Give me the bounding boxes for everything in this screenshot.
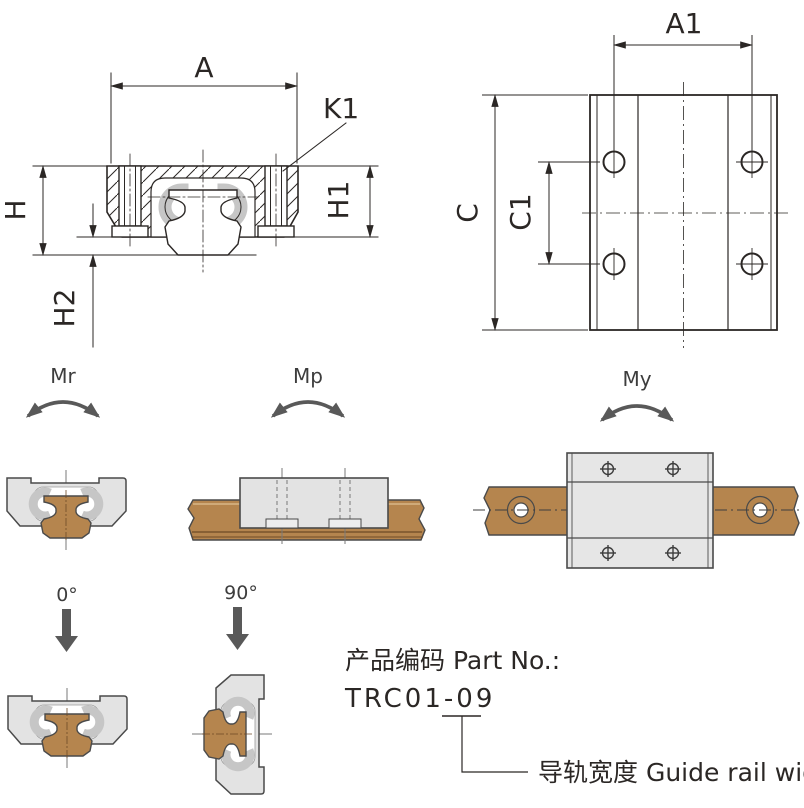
down-arrow-icon — [226, 607, 249, 650]
dim-label-h: H — [0, 199, 32, 220]
moment-arrow-icon — [273, 402, 343, 416]
dim-label-a1: A1 — [666, 7, 703, 40]
callout-leader-line — [462, 716, 528, 772]
part-no-label: 产品编码 Part No.: — [345, 646, 560, 675]
part-number-callout: 产品编码 Part No.: TRC01-09 导轨宽度 Guide rail … — [344, 646, 804, 787]
dim-label-h2: H2 — [48, 289, 81, 328]
front-section-view: A K1 H H1 H2 — [0, 51, 378, 347]
guide-rail-width-label: 导轨宽度 Guide rail width — [538, 758, 804, 787]
drawing-canvas: A K1 H H1 H2 — [0, 0, 804, 808]
moment-mp: Mp — [188, 364, 425, 544]
rail-cross-section — [8, 688, 127, 768]
dim-label-a: A — [194, 51, 213, 84]
technical-drawing-page: A K1 H H1 H2 — [0, 0, 804, 808]
orientation-90deg: 90° — [192, 582, 272, 794]
orientation-label-90: 90° — [224, 582, 258, 604]
dim-label-c1: C1 — [504, 193, 537, 230]
moment-arrow-icon — [28, 402, 98, 416]
dim-a — [111, 73, 297, 163]
moment-label-mr: Mr — [50, 364, 76, 388]
moment-arrow-icon — [602, 406, 672, 420]
plan-view: A1 C C1 — [451, 7, 790, 348]
moment-mr: Mr — [7, 364, 126, 550]
dim-k1 — [283, 123, 346, 171]
part-no-value: TRC01-09 — [344, 684, 495, 714]
moment-my: My — [473, 367, 800, 568]
carriage-section — [107, 150, 298, 272]
down-arrow-icon — [55, 609, 78, 652]
moment-label-mp: Mp — [293, 364, 323, 388]
rail-cross-section-rotated — [192, 675, 272, 794]
rail-cross-section — [7, 470, 126, 550]
dim-label-c: C — [451, 203, 484, 223]
orientation-label-0: 0° — [56, 584, 78, 606]
carriage-plan — [582, 82, 790, 348]
moment-label-my: My — [622, 367, 651, 391]
dim-label-k1: K1 — [323, 92, 359, 125]
dim-label-h1: H1 — [322, 181, 355, 220]
rail-side-view — [188, 468, 425, 544]
rail-top-view — [473, 453, 800, 568]
orientation-0deg: 0° — [8, 584, 127, 768]
